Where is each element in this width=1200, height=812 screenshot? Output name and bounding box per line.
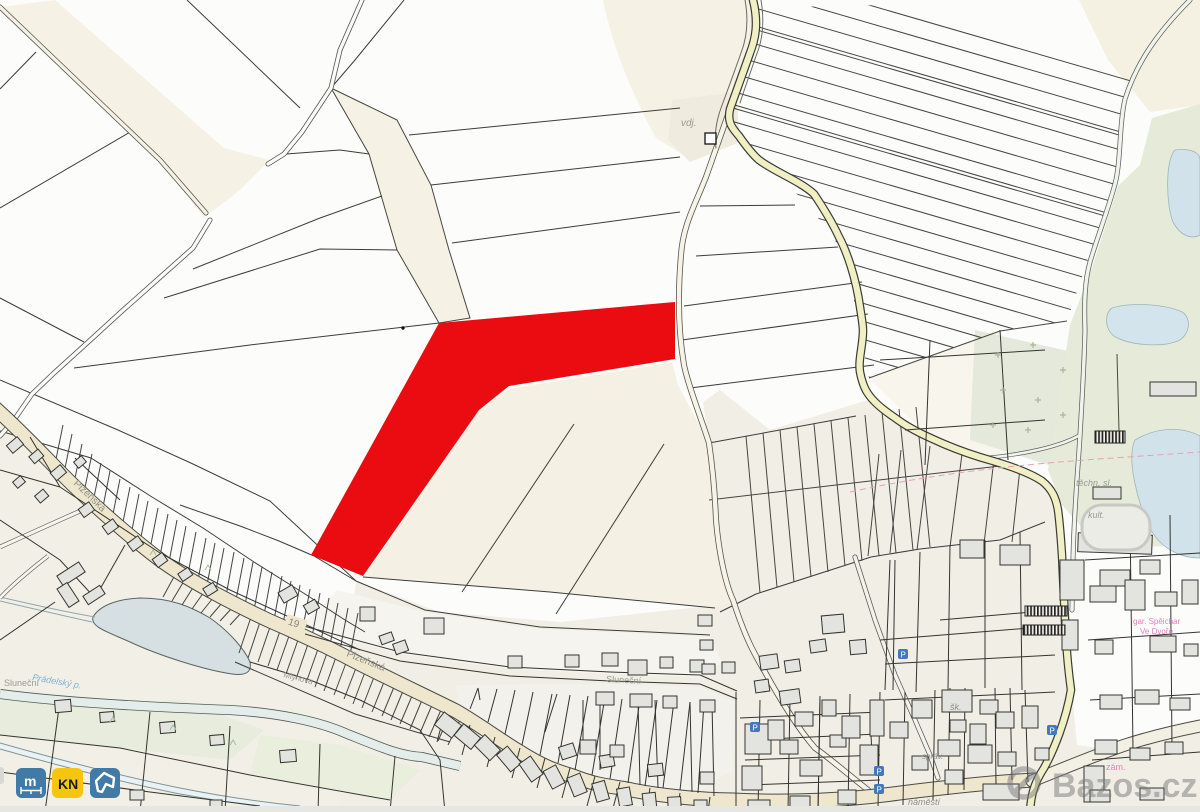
svg-text:P: P: [877, 768, 882, 777]
svg-text:náměstí: náměstí: [908, 797, 942, 807]
svg-text:Ve Dvoře: Ve Dvoře: [1140, 627, 1173, 636]
svg-text:KN: KN: [58, 776, 78, 792]
svg-text:kult.: kult.: [1088, 510, 1105, 520]
svg-text:P: P: [1050, 727, 1055, 736]
svg-text:m: m: [24, 773, 36, 789]
svg-text:gar. Spěichar: gar. Spěichar: [1133, 617, 1180, 626]
svg-text:P: P: [753, 724, 758, 733]
svg-text:Sluneční: Sluneční: [606, 674, 642, 686]
svg-text:P: P: [877, 786, 882, 795]
svg-text:Bazos.cz: Bazos.cz: [1052, 767, 1198, 805]
svg-text:vdj.: vdj.: [681, 118, 697, 129]
svg-text:těchn. sl.: těchn. sl.: [1076, 478, 1112, 488]
svg-text:správ.: správ.: [922, 752, 943, 761]
svg-text:šk.: šk.: [950, 702, 962, 712]
svg-text:P: P: [901, 651, 906, 660]
